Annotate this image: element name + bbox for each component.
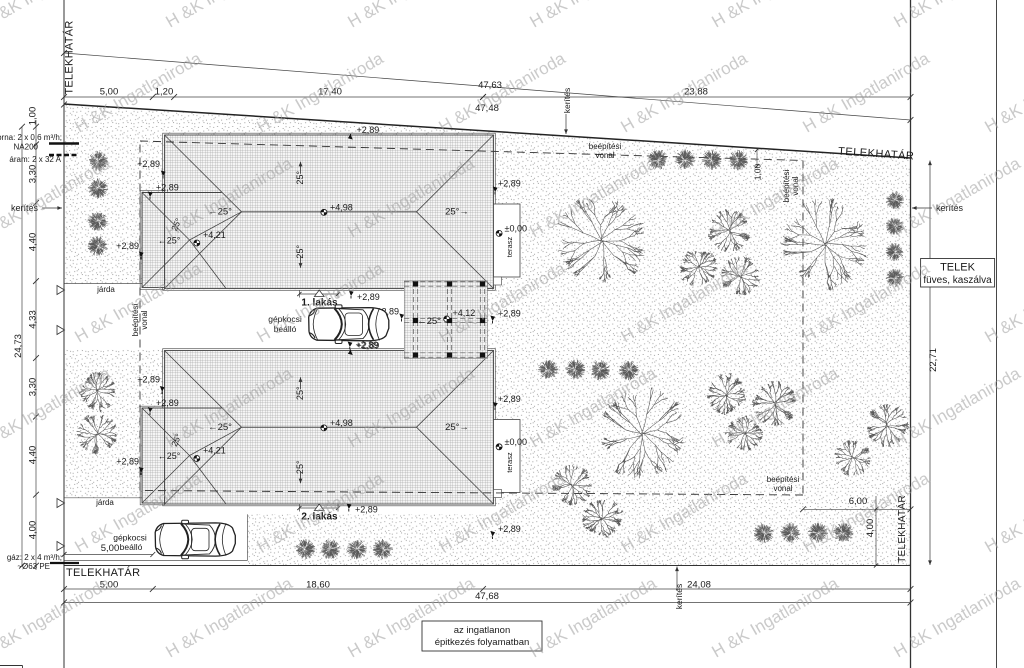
svg-text:terasz: terasz <box>505 237 514 258</box>
svg-text:kerítés: kerítés <box>674 584 684 610</box>
svg-text:4,00: 4,00 <box>28 521 39 540</box>
svg-text:épitkezés folyamatban: épitkezés folyamatban <box>435 637 530 648</box>
svg-text:+2,89: +2,89 <box>355 505 378 515</box>
svg-text:+2,89: +2,89 <box>156 183 179 193</box>
svg-text:NA200: NA200 <box>14 143 39 152</box>
svg-text:+2,89: +2,89 <box>498 394 521 404</box>
svg-text:1,00: 1,00 <box>28 107 39 126</box>
svg-text:+2,89: +2,89 <box>116 241 139 251</box>
svg-text:beépítési: beépítési <box>589 142 622 151</box>
svg-text:vonal: vonal <box>595 151 614 160</box>
svg-text:25°→: 25°→ <box>445 422 469 433</box>
svg-text:+4,98: +4,98 <box>330 202 353 212</box>
svg-text:3,30: 3,30 <box>28 165 39 184</box>
svg-text:25°: 25° <box>295 386 305 400</box>
svg-text:4,40: 4,40 <box>28 233 39 252</box>
svg-text:TELEK: TELEK <box>940 262 976 274</box>
svg-text:←25°: ←25° <box>158 451 181 461</box>
svg-text:TELEKHATÁR: TELEKHATÁR <box>63 20 76 94</box>
svg-text:+2,89: +2,89 <box>116 457 139 467</box>
svg-text:±0,00: ±0,00 <box>505 437 527 447</box>
svg-text:beépítési: beépítési <box>767 475 800 484</box>
svg-text:+2,89: +2,89 <box>357 292 380 302</box>
svg-text:beálló: beálló <box>120 542 143 552</box>
svg-text:az ingatlanon: az ingatlanon <box>454 625 511 636</box>
svg-text:25°: 25° <box>295 171 305 185</box>
svg-text:+2,89: +2,89 <box>137 159 160 169</box>
svg-text:áram: 2 x 32 A: áram: 2 x 32 A <box>9 155 61 164</box>
svg-text:+2,89: +2,89 <box>357 125 380 135</box>
svg-text:24,08: 24,08 <box>687 580 711 591</box>
svg-text:25°: 25° <box>295 245 305 259</box>
svg-text:~Ø63 PE: ~Ø63 PE <box>17 562 50 571</box>
svg-text:47,68: 47,68 <box>475 591 499 602</box>
svg-text:5,00: 5,00 <box>101 543 120 554</box>
svg-text:+2,89: +2,89 <box>137 375 160 385</box>
svg-text:terasz: terasz <box>505 452 514 473</box>
svg-text:←25°: ←25° <box>417 316 441 327</box>
svg-text:+2,89: +2,89 <box>498 179 521 189</box>
svg-text:kerítés: kerítés <box>562 88 572 114</box>
svg-text:+2,89: +2,89 <box>357 341 380 351</box>
svg-text:+4,21: +4,21 <box>203 230 226 240</box>
svg-text:+4,21: +4,21 <box>203 446 226 456</box>
svg-text:25°: 25° <box>295 460 305 474</box>
svg-text:vonal: vonal <box>140 310 149 329</box>
svg-text:4,33: 4,33 <box>28 310 39 329</box>
svg-text:füves, kaszálva: füves, kaszálva <box>923 275 992 286</box>
svg-text:3,30: 3,30 <box>28 378 39 397</box>
svg-text:18,60: 18,60 <box>306 580 330 591</box>
svg-text:járda: járda <box>95 498 114 507</box>
svg-text:22,71: 22,71 <box>928 348 939 372</box>
svg-text:+2,89: +2,89 <box>156 398 179 408</box>
svg-text:+2,89: +2,89 <box>498 524 521 534</box>
svg-text:25°→: 25°→ <box>445 206 469 217</box>
svg-text:4,40: 4,40 <box>28 446 39 465</box>
svg-text:csatorna: 2 x 0,6 m³/h;: csatorna: 2 x 0,6 m³/h; <box>0 133 62 142</box>
svg-text:+4,98: +4,98 <box>330 418 353 428</box>
svg-text:vonal: vonal <box>773 484 792 493</box>
svg-text:gáz: 2 x 4 m³/h;: gáz: 2 x 4 m³/h; <box>7 553 62 562</box>
svg-text:járda: járda <box>96 285 115 294</box>
svg-text:24,73: 24,73 <box>13 334 24 358</box>
svg-text:±0,00: ±0,00 <box>505 224 527 234</box>
